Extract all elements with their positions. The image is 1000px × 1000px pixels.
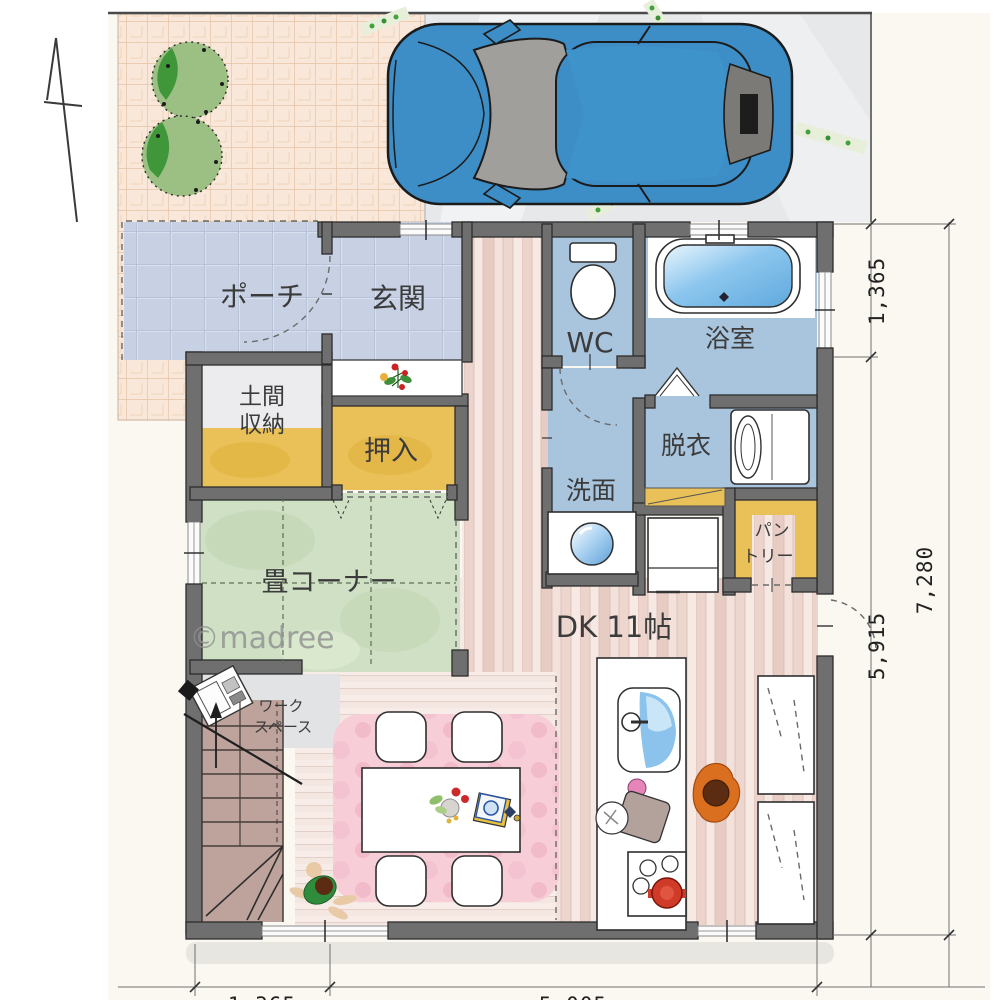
chair [376, 856, 426, 906]
chair [452, 712, 502, 762]
cupboard [758, 676, 814, 794]
vanity-sink-icon [548, 512, 636, 574]
kitchen-counter [596, 658, 686, 930]
chair [376, 712, 426, 762]
label-doma-2: 収納 [239, 412, 285, 438]
floor-plan-canvas: ポーチ 玄関 土間 収納 押入 WC 浴室 脱衣 洗面 パン トリー 畳コーナー… [0, 0, 1000, 1000]
label-workspace-2: スペース [254, 718, 312, 736]
refrigerator-icon [648, 518, 718, 592]
label-dressing: 脱衣 [661, 431, 711, 460]
bathtub-icon [656, 235, 800, 313]
chair [452, 856, 502, 906]
tree-icon [152, 42, 228, 118]
tree-icon [142, 116, 222, 196]
north-arrow-icon [44, 38, 82, 222]
stove-icon [628, 852, 686, 916]
label-entrance: 玄関 [370, 282, 426, 315]
label-pantry-2: トリー [743, 547, 794, 567]
label-pantry-1: パン [755, 521, 790, 541]
car [388, 20, 792, 208]
washing-machine-icon [731, 410, 809, 484]
label-workspace-1: ワーク [258, 697, 303, 715]
watermark: ©madree [189, 621, 334, 656]
dim-right-top: 1,365 [865, 257, 889, 325]
kitchen-sink-icon [618, 688, 680, 772]
dim-right-total: 7,280 [913, 546, 937, 614]
label-dk: DK 11帖 [556, 610, 672, 644]
label-porch: ポーチ [220, 280, 304, 313]
toilet-icon [570, 243, 616, 319]
label-tatami: 畳コーナー [262, 567, 397, 598]
label-wc: WC [566, 326, 613, 359]
floor-plan: ポーチ 玄関 土間 収納 押入 WC 浴室 脱衣 洗面 パン トリー 畳コーナー… [0, 0, 1000, 1000]
shelf-counter [645, 488, 725, 506]
building-shadow [186, 942, 834, 964]
dim-right-bottom: 5,915 [865, 612, 889, 680]
hallway-floor [462, 222, 548, 594]
label-washroom: 洗面 [566, 476, 616, 505]
dining-set [333, 712, 559, 906]
dim-bottom-right: 5,005 [539, 993, 607, 1000]
dim-bottom-left: 1,365 [228, 993, 296, 1000]
label-bathroom: 浴室 [705, 324, 755, 353]
cupboard [758, 802, 814, 924]
label-closet: 押入 [364, 436, 418, 467]
label-doma-1: 土間 [239, 384, 285, 410]
